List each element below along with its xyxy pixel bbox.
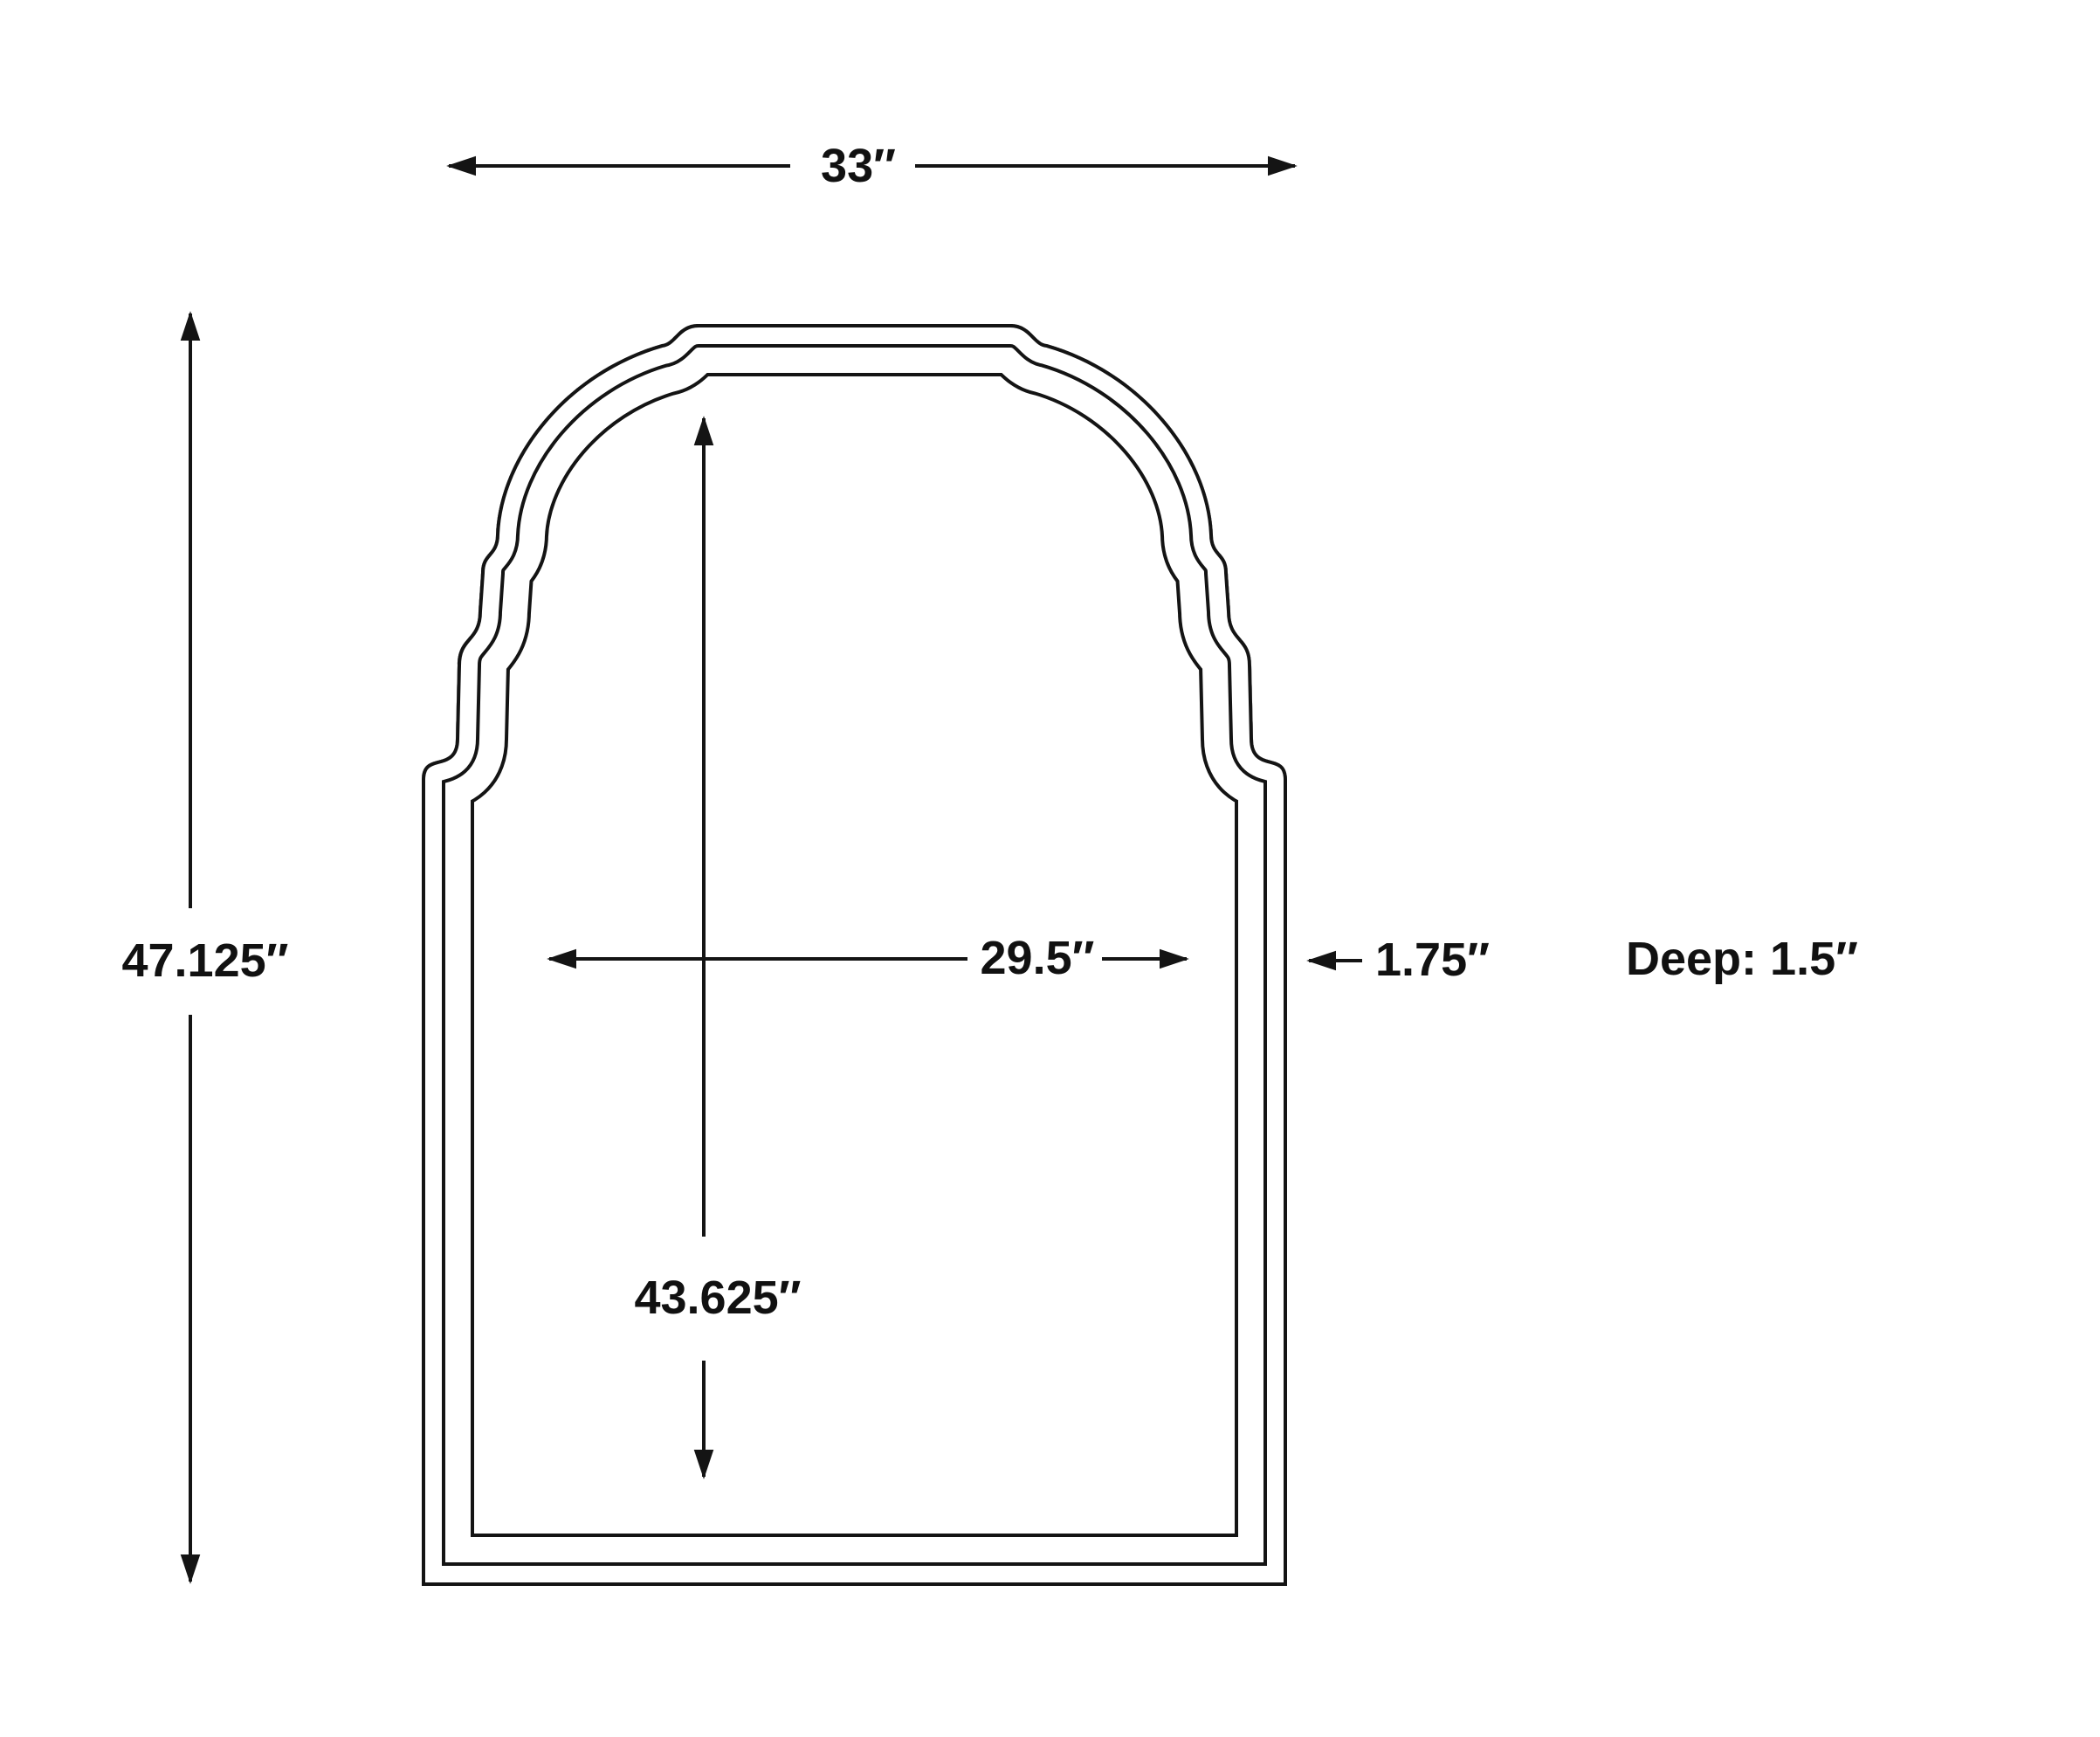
mirror-outline [422,324,1287,1586]
inner-width-label: 29.5″ [981,932,1095,984]
inner-height-label: 43.625″ [634,1272,801,1324]
overall-height-label: 47.125″ [121,934,288,987]
dimension-diagram-page: 33″ 47.125″ 29.5″ 1.75″ 43.625″ Deep: 1.… [0,0,2100,1737]
mirror-dimension-diagram: 33″ 47.125″ 29.5″ 1.75″ 43.625″ Deep: 1.… [0,0,2100,1737]
depth-label: Deep: 1.5″ [1626,933,1858,985]
frame-thickness-label: 1.75″ [1375,934,1490,986]
overall-width-label: 33″ [821,140,896,192]
